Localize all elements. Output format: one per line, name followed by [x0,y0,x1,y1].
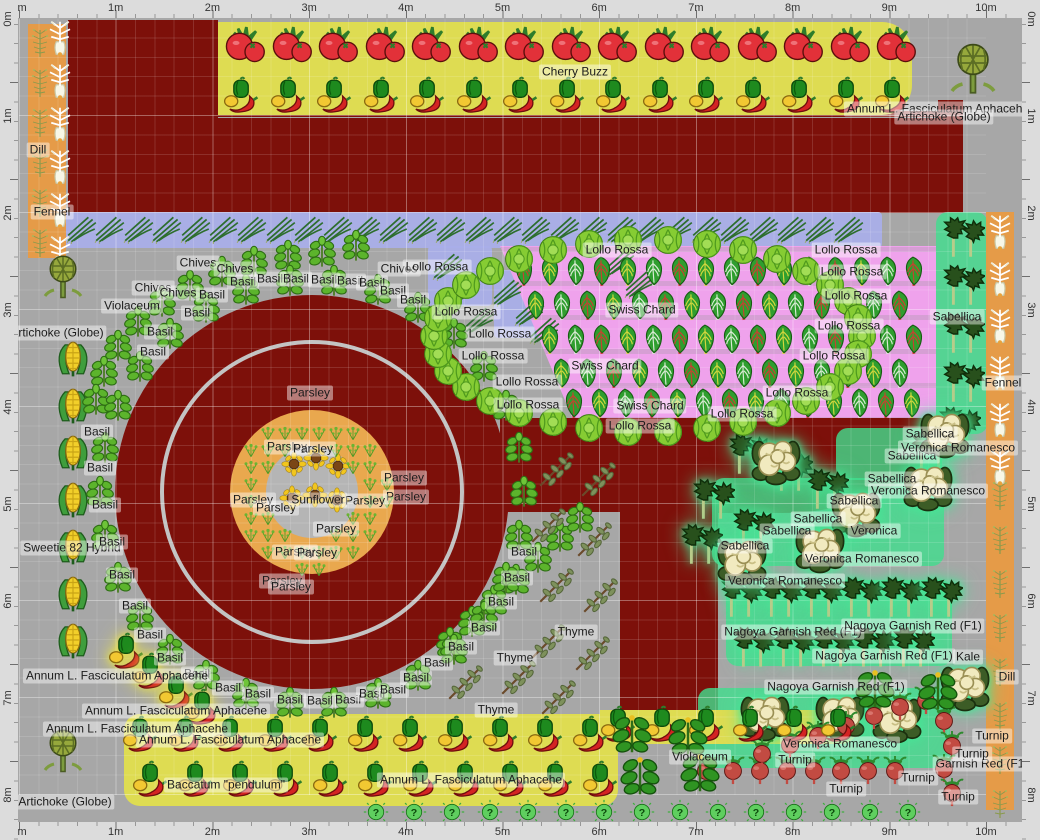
fennel-icon[interactable] [980,400,1020,440]
pepper-group-icon[interactable] [481,714,523,756]
pepper-plant-icon[interactable] [618,753,662,797]
chive-icon[interactable] [832,212,866,246]
ruler-label: 8m [785,2,800,14]
kale-icon[interactable] [917,575,963,621]
lettuce-icon[interactable] [760,243,793,276]
plant-label: Violaceum [669,750,731,765]
pepper-group-icon[interactable] [594,75,636,117]
ruler-label: 7m [1025,690,1037,705]
ruler-label: 0m [2,11,14,26]
plant-label: Turnip [972,729,1012,744]
plant-label: Basil [400,671,432,686]
plant-label: Sabellica [760,524,815,539]
fennel-icon[interactable] [40,104,80,144]
plant-label: Thyme [494,651,537,666]
plant-label: Swiss Chard [568,359,641,374]
bed-red[interactable] [68,118,963,213]
ruler-label: 5m [1025,496,1037,511]
chard-icon[interactable] [897,255,931,289]
plant-label: Parsley [381,471,427,486]
pepper-group-icon[interactable] [734,75,776,117]
basil-icon[interactable] [506,474,542,510]
plant-label: Parsley [290,442,336,457]
plant-label: Basil [181,306,213,321]
pepper-group-icon[interactable] [436,714,478,756]
plant-label: Lollo Rossa [606,419,675,434]
parsley-tuft-icon[interactable] [258,455,278,475]
thyme-icon[interactable] [577,459,619,501]
ruler-label: 6m [1025,593,1037,608]
ruler-label: 3m [301,2,316,14]
pepper-group-icon[interactable] [641,75,683,117]
pepper-group-icon[interactable] [269,75,311,117]
artichoke-icon[interactable] [39,254,87,302]
tomato-icon[interactable] [735,23,779,67]
pepper-group-icon[interactable] [526,714,568,756]
dill-icon[interactable] [984,699,1016,731]
plant-label: Lollo Rossa [812,243,881,258]
ruler-label: 2m [205,2,220,14]
plant-label: Annum L. Fasciculatum Aphacehe [23,669,211,684]
plant-label: Lollo Rossa [708,407,777,422]
plant-label: Nagoya Garnish Red (F1) [812,649,955,664]
tomato-icon[interactable] [270,23,314,67]
plant-label: Lollo Rossa [459,349,528,364]
plant-label: Basil [397,293,429,308]
pepper-group-icon[interactable] [315,75,357,117]
plant-label: Basil [196,288,228,303]
tomato-icon[interactable] [688,23,732,67]
bed-red[interactable] [620,418,718,718]
corn-icon[interactable] [52,572,94,614]
ruler-label: 9m [882,2,897,14]
plant-label: Sabellica [930,310,985,325]
dill-icon[interactable] [984,787,1016,819]
plant-label: Swiss Chard [605,303,678,318]
plant-label: Sunflower [288,493,347,508]
ruler-label: 6m [592,826,607,838]
pepper-group-icon[interactable] [501,75,543,117]
plant-label: Veronica Romanesco [780,737,900,752]
ruler-bottom: 0m1m2m3m4m5m6m7m8m9m10m [0,822,1040,840]
pepper-group-icon[interactable] [687,75,729,117]
plant-label: Basil [242,687,274,702]
plant-label: Nagoya Garnish Red (F1) [764,680,907,695]
ruler-label: 2m [1025,205,1037,220]
tomato-icon[interactable] [456,23,500,67]
ruler-right: 0m1m2m3m4m5m6m7m8m [1022,0,1040,840]
plant-label: Basil [144,325,176,340]
plant-label: Basil [212,681,244,696]
pepper-plant-icon[interactable] [610,711,654,755]
turnip-icon[interactable] [826,755,856,785]
plant-label: Lollo Rossa [800,349,869,364]
pepper-group-icon[interactable] [391,714,433,756]
ruler-label: 5m [2,496,14,511]
plant-label: Lollo Rossa [466,327,535,342]
tomato-icon[interactable] [781,23,825,67]
plant-label: Nagoya Garnish Red (F1) [841,619,984,634]
plant-label: Violaceum [101,299,163,314]
ruler-label: 4m [2,399,14,414]
lettuce-icon[interactable] [536,234,569,267]
corn-icon[interactable] [52,619,94,661]
fennel-icon[interactable] [980,259,1020,299]
ruler-label: 6m [2,593,14,608]
plant-label: Basil [485,595,517,610]
ruler-label: 3m [301,826,316,838]
tomato-icon[interactable] [223,23,267,67]
romanesco-icon[interactable] [749,433,803,487]
pepper-group-icon[interactable] [222,75,264,117]
lettuce-icon[interactable] [473,255,506,288]
plant-label: Parsley [294,546,340,561]
plant-label: Turnip [826,782,866,797]
lettuce-icon[interactable] [690,227,723,260]
ruler-label: 10m [975,2,996,14]
plant-label: Basil [501,571,533,586]
plant-label: Swiss Chard [613,399,686,414]
plant-label: Basil [81,425,113,440]
plant-label: Basil [468,621,500,636]
plant-label: Basil [119,599,151,614]
fennel-icon[interactable] [40,18,80,58]
tomato-icon[interactable] [409,23,453,67]
lettuce-icon[interactable] [727,234,760,267]
plant-label: Lollo Rossa [494,398,563,413]
pepper-group-icon[interactable] [362,75,404,117]
ruler-label: 7m [2,690,14,705]
pepper-group-icon[interactable] [408,75,450,117]
plant-label: Annum L. Fasciculatum Aphacehe [82,704,270,719]
kale-icon[interactable] [939,263,985,309]
thyme-icon[interactable] [573,519,615,561]
pepper-group-icon[interactable] [581,759,623,801]
pepper-group-icon[interactable] [731,704,773,746]
tomato-icon[interactable] [502,23,546,67]
plant-label: Basil [96,535,128,550]
ruler-label: 4m [398,2,413,14]
lettuce-icon[interactable] [573,412,606,445]
tomato-icon[interactable] [363,23,407,67]
ruler-label: 1m [1025,108,1037,123]
plant-label: Veronica Romanesco [802,552,922,567]
plant-label: Lollo Rossa [403,260,472,275]
plant-label: Veronica Romanesco [868,484,988,499]
tomato-icon[interactable] [642,23,686,67]
plant-label: Kale [953,650,983,665]
thyme-icon[interactable] [535,565,577,607]
plant-label: Parsley [287,386,333,401]
plant-label: Basil [508,545,540,560]
plant-label: Artichoke (Globe) [7,326,106,341]
pepper-group-icon[interactable] [548,75,590,117]
garden-canvas[interactable]: Cherry BuzzAnnum L. Fasciculatum Aphaceh… [0,0,1040,840]
basil-icon[interactable] [338,228,374,264]
plant-label: Turnip [938,790,978,805]
plant-label: Lollo Rossa [763,386,832,401]
thyme-icon[interactable] [537,677,579,719]
ruler-label: 7m [688,826,703,838]
pepper-group-icon[interactable] [311,759,353,801]
pepper-group-icon[interactable] [346,714,388,756]
plant-label: Lollo Rossa [432,305,501,320]
tomato-icon[interactable] [549,23,593,67]
plant-label: Annum L. Fasciculatum Aphacehe [377,773,565,788]
dill-icon[interactable] [984,523,1016,555]
plant-label: Veronica Romanesco [898,441,1018,456]
plant-label: Veronica [848,524,901,539]
plant-label: Cherry Buzz [539,65,611,80]
plant-label: Thyme [475,703,518,718]
plant-label: Lollo Rossa [493,375,562,390]
ruler-label: 2m [2,205,14,220]
tomato-icon[interactable] [874,23,918,67]
ruler-label: 8m [1025,787,1037,802]
basil-icon[interactable] [100,388,136,424]
ruler-label: 1m [2,108,14,123]
fennel-icon[interactable] [980,306,1020,346]
plant-label: Lollo Rossa [815,319,884,334]
ruler-label: 9m [882,826,897,838]
plant-label: Parsley [268,580,314,595]
dill-icon[interactable] [984,611,1016,643]
plant-label: Parsley [313,522,359,537]
ruler-label: 4m [398,826,413,838]
plant-label: Baccatum "pendulum" [164,778,288,793]
artichoke-big-icon[interactable] [945,42,1001,98]
pepper-group-icon[interactable] [780,75,822,117]
basil-icon[interactable] [501,430,537,466]
ruler-label: 1m [108,2,123,14]
plant-label: Lollo Rossa [822,289,891,304]
parsley-tuft-icon[interactable] [360,523,380,543]
plant-label: Fennel [982,376,1025,391]
ruler-label: 1m [108,826,123,838]
plant-label: Dill [27,143,50,158]
plant-label: Lollo Rossa [583,243,652,258]
plant-label: Artichoke (Globe) [15,795,114,810]
plant-label: Turnip [898,771,938,786]
ruler-label: 5m [495,2,510,14]
plant-label: Basil [106,568,138,583]
plant-label: Basil [134,628,166,643]
plant-label: Basil [89,498,121,513]
plant-label: Parsley [342,494,388,509]
plant-label: Basil [84,461,116,476]
chard-icon[interactable] [897,323,931,357]
ruler-label: 3m [1025,302,1037,317]
plant-label: Basil [274,693,306,708]
ruler-top: 0m1m2m3m4m5m6m7m8m9m10m [0,0,1040,18]
pepper-plant-icon[interactable] [916,668,960,712]
plant-label: Annum L. Fasciculatum Aphacehe [136,733,324,748]
ruler-label: 2m [205,826,220,838]
plant-label: Thyme [555,625,598,640]
ruler-label: 8m [785,826,800,838]
plant-label: Sabellica [903,427,958,442]
tomato-icon[interactable] [828,23,872,67]
ruler-label: 0m [1025,11,1037,26]
plant-label: Basil [421,656,453,671]
plant-label: Parsley [383,490,429,505]
lettuce-icon[interactable] [503,243,536,276]
plant-label: Sabellica [718,539,773,554]
kale-icon[interactable] [939,215,985,261]
plant-label: Veronica Romanesco [725,574,845,589]
plant-label: Basil [154,651,186,666]
plant-label: Turnip [775,753,815,768]
plant-label: Lollo Rossa [818,265,887,280]
parsley-tuft-icon[interactable] [343,540,363,560]
pepper-group-icon[interactable] [455,75,497,117]
ruler-label: 4m [1025,399,1037,414]
fennel-icon[interactable] [980,212,1020,252]
ruler-label: 6m [592,2,607,14]
plant-label: Chives [157,286,200,301]
tomato-icon[interactable] [316,23,360,67]
kale-icon[interactable] [939,360,985,406]
plant-label: Basil [137,345,169,360]
dill-icon[interactable] [984,567,1016,599]
plant-label: Artichoke (Globe) [894,110,993,125]
fennel-icon[interactable] [40,61,80,101]
ruler-left: 0m1m2m3m4m5m6m7m8m [0,0,18,840]
plant-label: Basil [445,640,477,655]
thyme-icon[interactable] [579,575,621,617]
plant-label: Dill [996,670,1019,685]
ruler-label: 5m [495,826,510,838]
plant-label: Turnip [952,747,992,762]
ruler-label: 3m [2,302,14,317]
lettuce-icon[interactable] [651,224,684,257]
tomato-icon[interactable] [595,23,639,67]
plant-label: Fennel [31,205,74,220]
ruler-label: 7m [688,2,703,14]
chard-icon[interactable] [883,357,917,391]
turnip-icon[interactable] [853,755,883,785]
ruler-label: 8m [2,787,14,802]
ruler-label: 10m [975,826,996,838]
